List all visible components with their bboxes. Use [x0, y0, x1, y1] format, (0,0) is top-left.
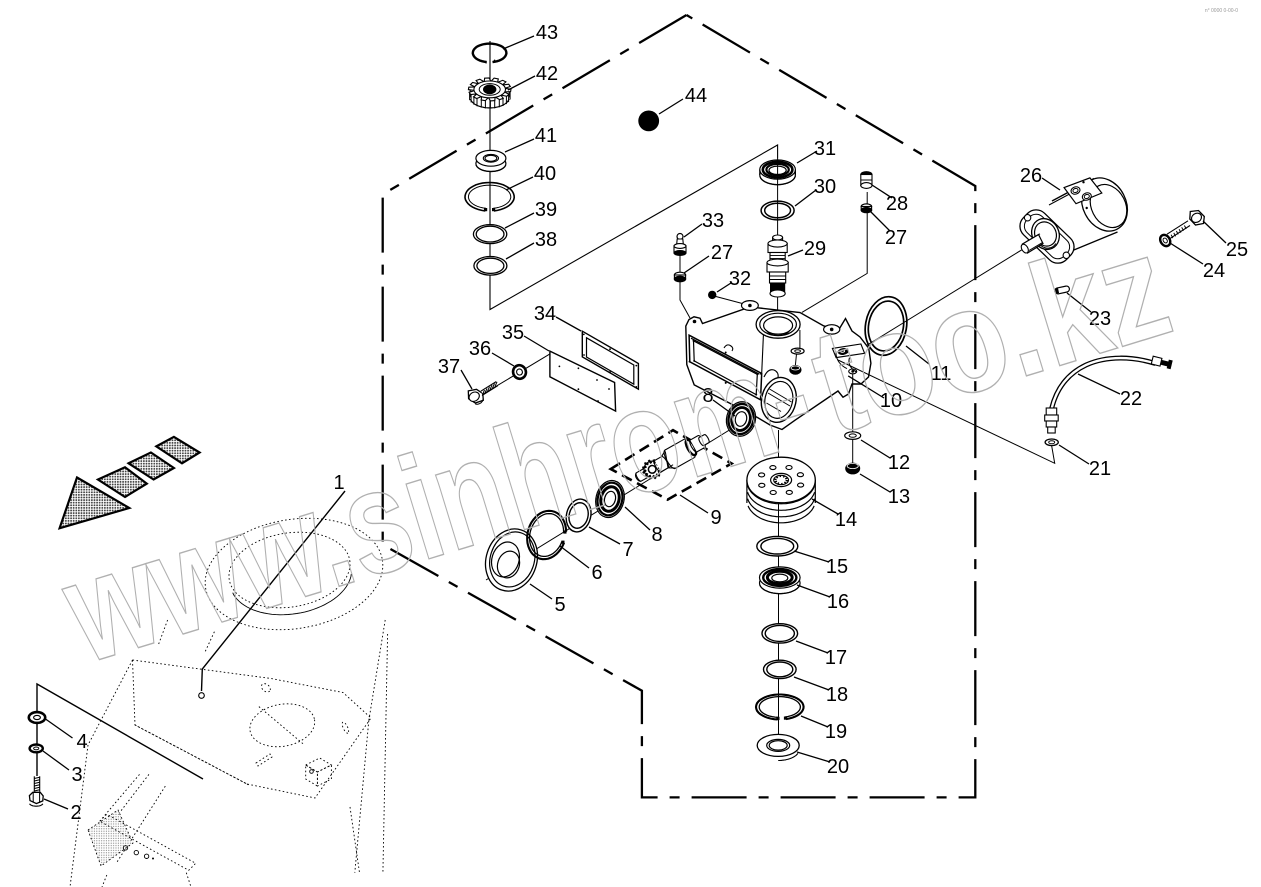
svg-text:16: 16 — [827, 591, 849, 613]
svg-text:31: 31 — [814, 138, 836, 160]
svg-text:37: 37 — [438, 356, 460, 378]
svg-text:33: 33 — [702, 210, 724, 232]
svg-text:22: 22 — [1120, 388, 1142, 410]
svg-text:26: 26 — [1020, 165, 1042, 187]
svg-text:30: 30 — [814, 176, 836, 198]
svg-text:6: 6 — [591, 562, 602, 584]
svg-text:13: 13 — [888, 486, 910, 508]
svg-text:29: 29 — [804, 238, 826, 260]
svg-text:24: 24 — [1203, 260, 1225, 282]
svg-text:18: 18 — [826, 684, 848, 706]
svg-text:41: 41 — [535, 125, 557, 147]
svg-text:19: 19 — [825, 721, 847, 743]
svg-text:27: 27 — [885, 227, 907, 249]
svg-text:21: 21 — [1089, 458, 1111, 480]
svg-text:12: 12 — [888, 452, 910, 474]
svg-text:8: 8 — [651, 524, 662, 546]
svg-text:34: 34 — [534, 303, 556, 325]
svg-text:3: 3 — [71, 764, 82, 786]
svg-text:32: 32 — [729, 268, 751, 290]
svg-text:40: 40 — [534, 163, 556, 185]
svg-text:42: 42 — [536, 63, 558, 85]
svg-text:39: 39 — [535, 199, 557, 221]
svg-text:35: 35 — [502, 322, 524, 344]
svg-text:38: 38 — [535, 229, 557, 251]
svg-text:27: 27 — [711, 242, 733, 264]
svg-text:28: 28 — [886, 193, 908, 215]
svg-text:17: 17 — [825, 647, 847, 669]
svg-text:43: 43 — [536, 22, 558, 44]
svg-text:20: 20 — [827, 756, 849, 778]
svg-text:44: 44 — [685, 85, 707, 107]
svg-text:5: 5 — [554, 594, 565, 616]
svg-text:15: 15 — [826, 556, 848, 578]
svg-text:n° 0000 0-00-0: n° 0000 0-00-0 — [1205, 8, 1238, 14]
svg-text:36: 36 — [469, 338, 491, 360]
svg-text:25: 25 — [1226, 239, 1248, 261]
svg-text:2: 2 — [70, 802, 81, 824]
svg-text:14: 14 — [835, 509, 857, 531]
svg-text:9: 9 — [710, 507, 721, 529]
svg-text:4: 4 — [76, 731, 87, 753]
svg-text:7: 7 — [622, 539, 633, 561]
